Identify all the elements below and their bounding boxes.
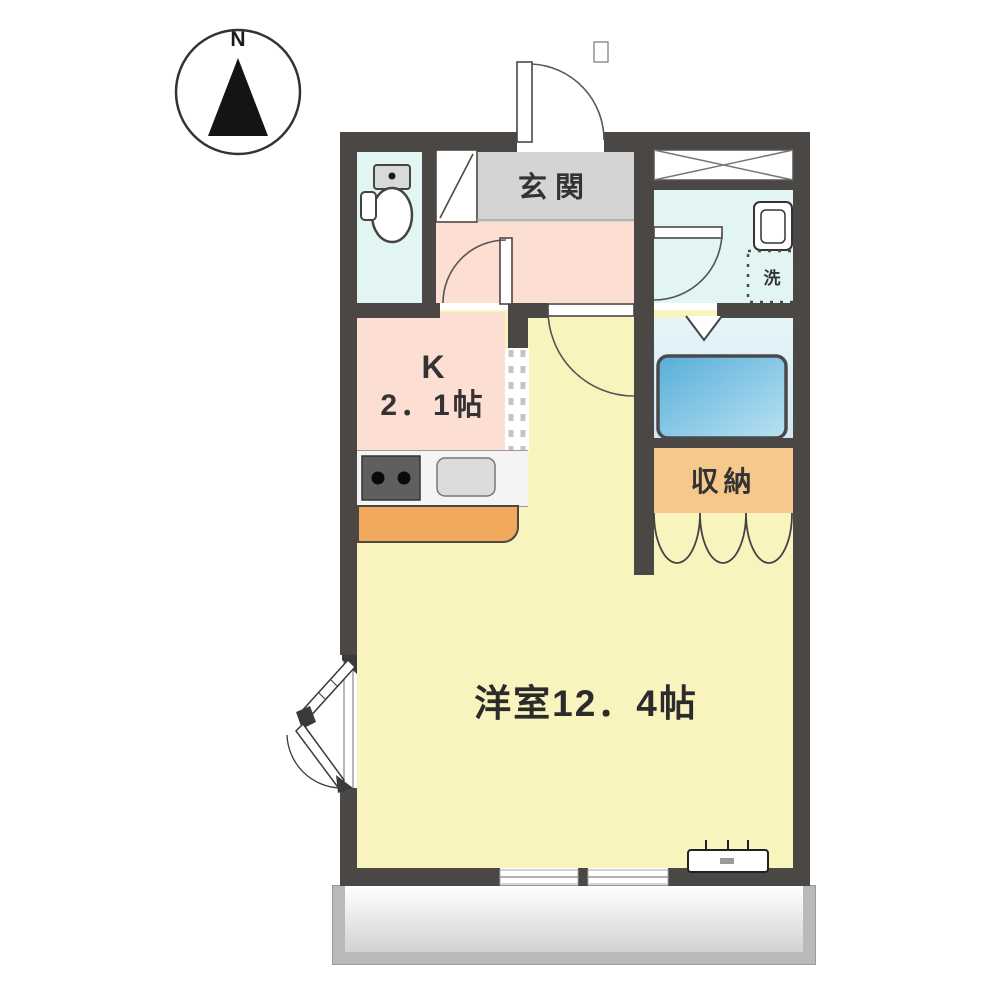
plan-symbols-layer <box>0 0 1000 1000</box>
kitchen-door <box>443 238 512 304</box>
shoe-cabinet-icon <box>436 150 477 222</box>
kitchen-size-label: 2．1帖 <box>362 386 504 426</box>
floor-plan-canvas: N 玄関 K 2．1帖 洗 収納 洋室12．4帖 <box>0 0 1000 1000</box>
gas-stove-icon <box>362 456 420 500</box>
kitchen-sink-icon <box>437 458 495 496</box>
living-room-door <box>548 304 634 396</box>
entrance-label: 玄関 <box>485 168 625 202</box>
kitchen-label-group: K 2．1帖 <box>362 348 504 426</box>
crossed-box-symbol <box>654 150 793 180</box>
bathroom-folding-door <box>686 316 722 340</box>
ac-unit-icon <box>688 840 768 872</box>
washroom-door <box>654 227 722 300</box>
open-wall-dotted-symbol <box>505 348 529 450</box>
entrance-door <box>517 42 608 152</box>
kitchen-label: K <box>362 348 504 386</box>
compass-north-label: N <box>224 28 252 52</box>
living-room-label: 洋室12．4帖 <box>408 678 764 722</box>
toilet-icon <box>361 165 412 242</box>
casement-window <box>287 655 357 793</box>
balcony-sliding-window-right <box>588 870 668 884</box>
balcony-sliding-window-left <box>500 870 578 884</box>
storage-label: 収納 <box>660 462 787 498</box>
bathtub-icon <box>658 356 786 438</box>
washbasin-icon <box>754 202 792 250</box>
storage-accordion-door <box>654 513 792 563</box>
laundry-mark-label: 洗 <box>760 265 784 287</box>
